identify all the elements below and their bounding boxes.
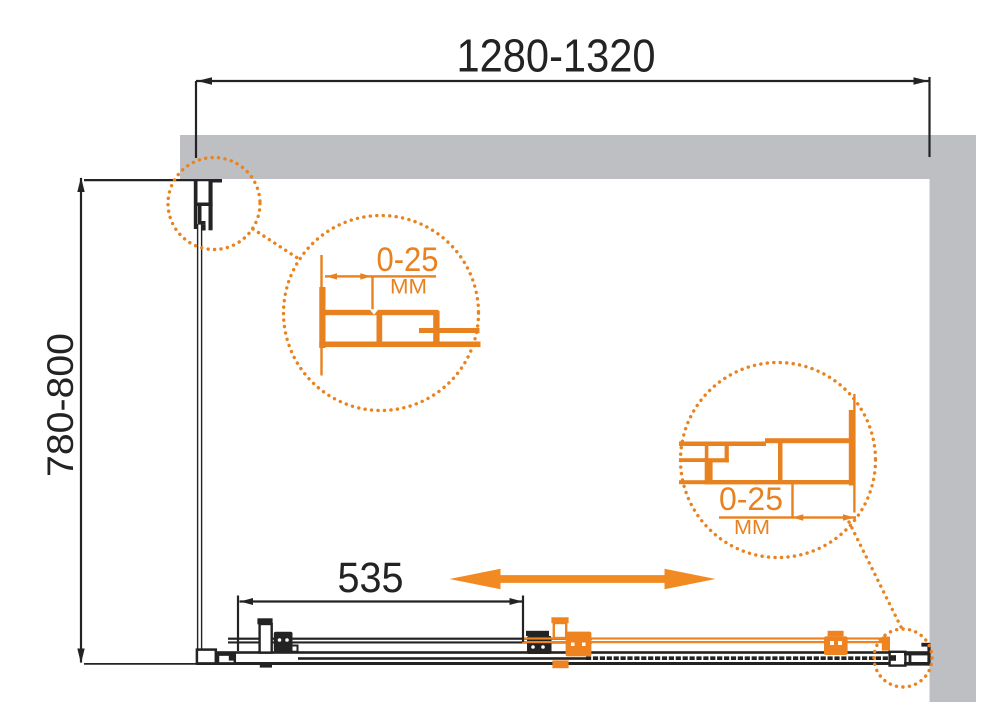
- svg-text:MM: MM: [734, 517, 770, 539]
- svg-text:0-25: 0-25: [377, 241, 439, 279]
- svg-text:780-800: 780-800: [40, 333, 81, 477]
- svg-text:535: 535: [338, 554, 404, 602]
- svg-text:MM: MM: [390, 276, 427, 299]
- svg-text:0-25: 0-25: [719, 481, 783, 517]
- svg-text:1280-1320: 1280-1320: [457, 30, 656, 82]
